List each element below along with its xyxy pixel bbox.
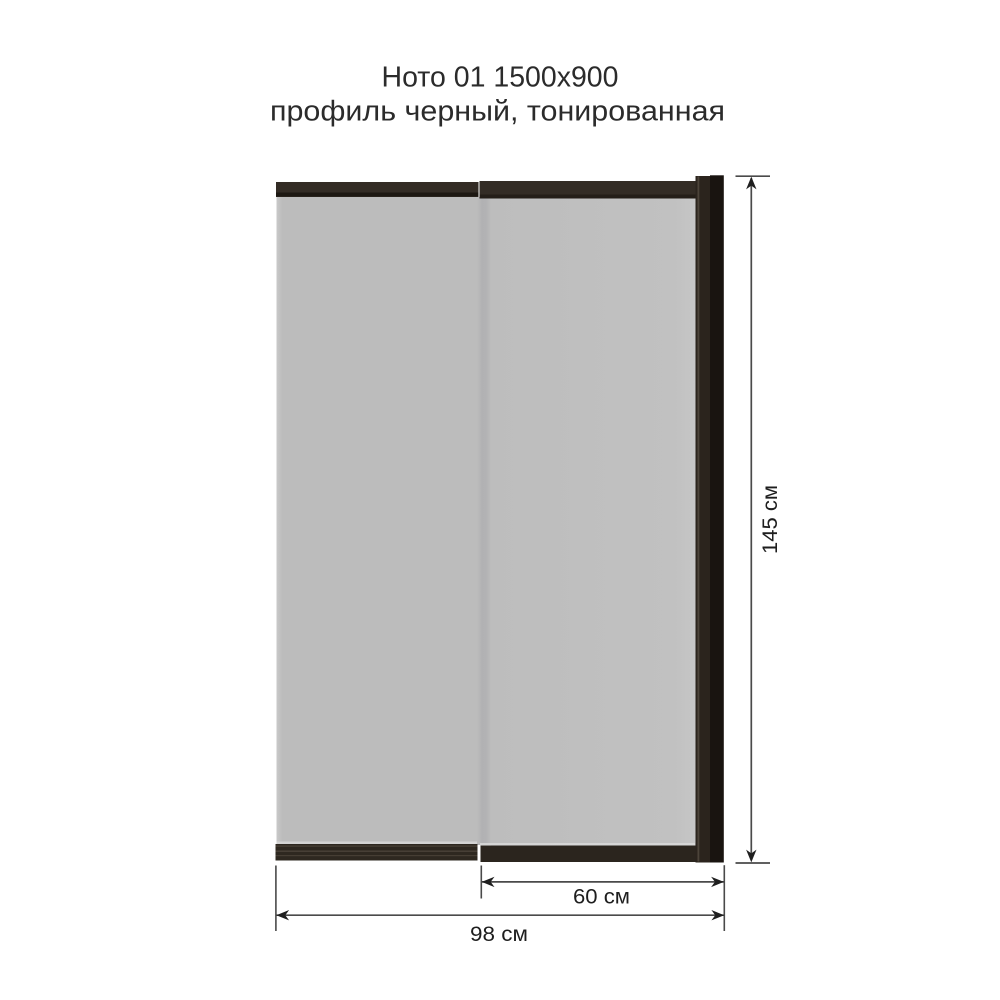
svg-text:профиль черный, тонированная: профиль черный, тонированная bbox=[270, 96, 725, 128]
svg-text:98 см: 98 см bbox=[470, 923, 528, 946]
svg-text:60 см: 60 см bbox=[573, 886, 630, 909]
svg-text:Ното 01 1500х900: Ното 01 1500х900 bbox=[382, 62, 619, 94]
svg-text:145 см: 145 см bbox=[759, 485, 782, 554]
